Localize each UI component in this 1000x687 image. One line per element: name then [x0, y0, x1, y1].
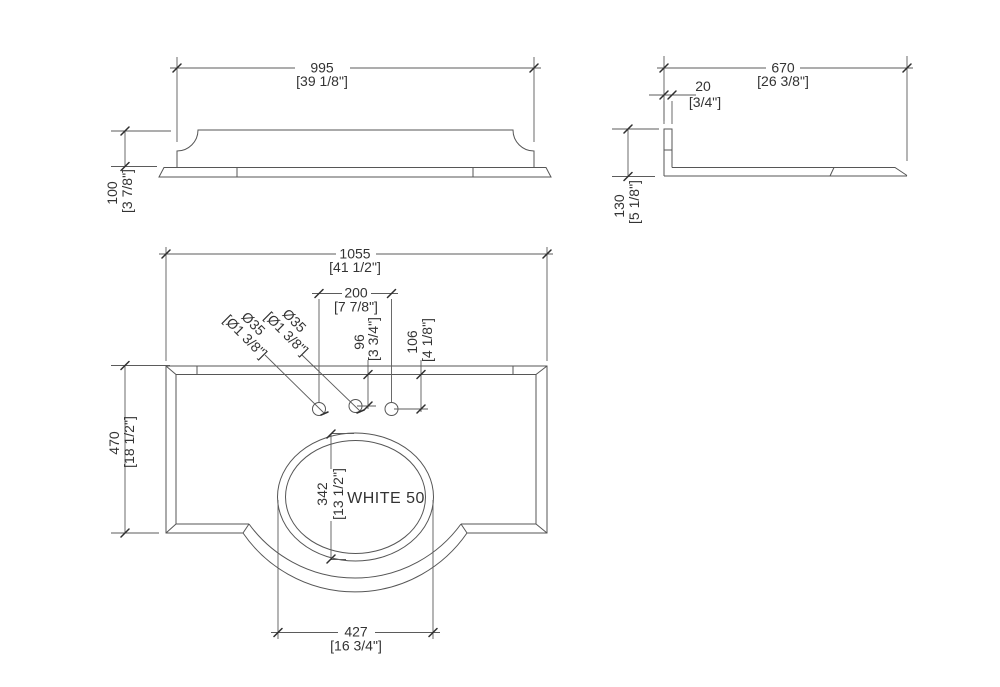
- side-setback-in: [4 1/8"]: [419, 318, 435, 362]
- vanity-top-drawing: 995 [39 1/8"] 100 [3 7/8"] 670 [26 3/8"]…: [0, 0, 1000, 687]
- plan-depth-in: [18 1/2"]: [121, 416, 137, 468]
- side-height-mm: 130: [611, 194, 627, 218]
- product-label: WHITE 50: [347, 490, 425, 507]
- front-height-mm: 100: [104, 181, 120, 205]
- side-splash-mm: 20: [695, 78, 711, 94]
- drawing-background: [0, 0, 1000, 687]
- basin-depth-mm: 342: [314, 482, 330, 506]
- front-width-in: [39 1/8"]: [296, 73, 348, 89]
- front-height-in: [3 7/8"]: [119, 169, 135, 213]
- center-setback-in: [3 3/4"]: [365, 317, 381, 361]
- plan-width-in: [41 1/2"]: [329, 259, 381, 275]
- side-depth-in: [26 3/8"]: [757, 73, 809, 89]
- side-height-in: [5 1/8"]: [626, 180, 642, 224]
- basin-width-in: [16 3/4"]: [330, 638, 382, 654]
- basin-depth-in: [13 1/2"]: [330, 468, 346, 520]
- hole-spacing-in: [7 7/8"]: [334, 299, 378, 315]
- side-setback-mm: 106: [404, 330, 420, 354]
- plan-depth-mm: 470: [106, 431, 122, 455]
- side-splash-in: [3/4"]: [689, 94, 721, 110]
- technical-drawing-page: 995 [39 1/8"] 100 [3 7/8"] 670 [26 3/8"]…: [0, 0, 1000, 687]
